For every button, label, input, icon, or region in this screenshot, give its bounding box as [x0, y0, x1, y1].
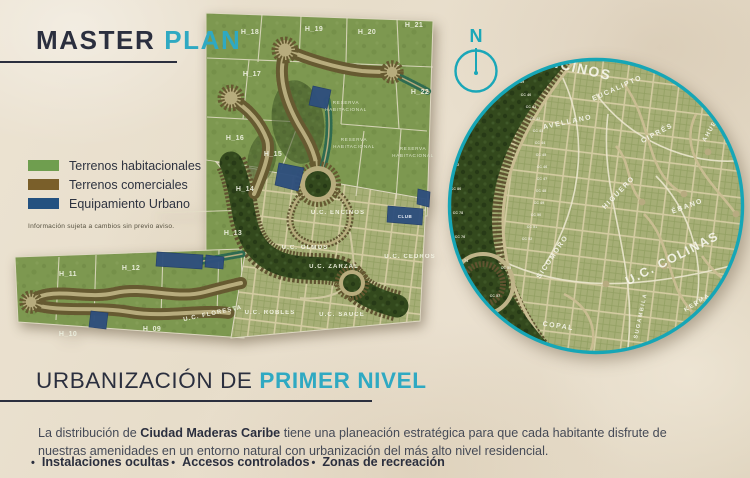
parcel-label: H_09: [143, 326, 161, 333]
parcel-label: H_22: [411, 89, 429, 96]
cc-lot-label: CC 42: [530, 117, 541, 121]
reserve-label: RESERVA: [400, 146, 427, 151]
parcel-label: H_21: [405, 22, 423, 29]
legend-label: Terrenos habitacionales: [69, 159, 201, 173]
parcel-label: H_14: [236, 186, 254, 193]
reserve-label: RESERVA: [341, 137, 368, 142]
cc-lot-label: CC 76: [455, 235, 466, 239]
cc-lot-label: CC 40: [521, 93, 532, 97]
unit-label: U.C. OLMOS: [282, 245, 329, 251]
compass-north-label: N: [470, 26, 483, 46]
parcel-label: H_17: [243, 71, 261, 78]
cc-lot-label: CC 41: [526, 105, 537, 109]
cc-lot-label: CC 55: [501, 266, 512, 270]
unit-label: U.C. CEDROS: [384, 254, 435, 260]
cc-lot-label: CC 43: [533, 129, 544, 133]
legend-row-habitacionales: Terrenos habitacionales: [28, 156, 201, 175]
unit-label: U.C. ZARZAL: [309, 264, 359, 270]
cc-lot-label: CC 50: [531, 213, 542, 217]
section-title-accent: PRIMER NIVEL: [259, 368, 426, 393]
feature-bullet: •: [171, 457, 175, 469]
parcel-label: H_10: [59, 331, 77, 338]
parcel-label: H_13: [224, 230, 242, 237]
legend-swatch-green: [28, 160, 59, 171]
unit-label: U.C. SAUCE: [319, 312, 365, 318]
legend-swatch-brown: [28, 179, 59, 190]
intro-prefix: La distribución de: [38, 426, 140, 440]
inset-content: CC 39CC 40CC 41CC 42CC 43CC 44CC 45CC 46…: [446, 56, 746, 356]
cc-lot-label: CC 47: [537, 177, 548, 181]
cc-lot-label: CC 51: [527, 225, 538, 229]
title-underline: [0, 61, 177, 63]
parcel-label: H_12: [122, 265, 140, 272]
feature-label: Accesos controlados: [182, 455, 309, 469]
section-title: URBANIZACIÓN DE PRIMER NIVEL: [36, 368, 427, 394]
cc-lot-label: CC 44: [535, 141, 546, 145]
section-title-dark: URBANIZACIÓN DE: [36, 368, 259, 393]
unit-label: U.C. ROBLES: [245, 310, 296, 316]
cc-lot-label: CC 52: [522, 237, 533, 241]
reserve-label: HABITACIONAL: [392, 153, 434, 158]
cc-lot-label: CC 57: [490, 294, 501, 298]
parcel-label: H_20: [358, 29, 376, 36]
page-title-accent: PLAN: [164, 25, 241, 55]
legend-swatch-blue: [28, 198, 59, 209]
reserve-label: RESERVA: [333, 100, 360, 105]
cc-lot-label: CC 48: [536, 189, 547, 193]
legend-label: Equipamiento Urbano: [69, 197, 190, 211]
legend-disclaimer: Información sujeta a cambios sin previo …: [28, 223, 174, 230]
cc-lot-label: CC 78: [453, 211, 464, 215]
cc-lot-label: CC 45: [536, 153, 547, 157]
legend: Terrenos habitacionales Terrenos comerci…: [28, 156, 201, 213]
features-line: •Instalaciones ocultas•Accesos controlad…: [31, 455, 445, 469]
parcel-label: H_19: [305, 26, 323, 33]
zoom-inset: CC 39CC 40CC 41CC 42CC 43CC 44CC 45CC 46…: [446, 56, 746, 356]
feature-label: Instalaciones ocultas: [42, 455, 169, 469]
cc-lot-label: CC 84: [447, 139, 458, 143]
feature-bullet: •: [312, 457, 316, 469]
legend-label: Terrenos comerciales: [69, 178, 188, 192]
reserve-label: HABITACIONAL: [325, 107, 367, 112]
section-underline: [0, 400, 372, 402]
legend-row-comerciales: Terrenos comerciales: [28, 175, 201, 194]
cc-lot-label: CC 49: [534, 201, 545, 205]
page-title: MASTER PLAN: [36, 25, 241, 56]
feature-label: Zonas de recreación: [322, 455, 445, 469]
page-title-dark: MASTER: [36, 25, 164, 55]
parcel-label: H_16: [226, 135, 244, 142]
intro-brand: Ciudad Maderas Caribe: [140, 426, 280, 440]
club-label: CLUB: [398, 214, 413, 219]
map-misc-labels: CLUB: [398, 214, 413, 219]
cc-lot-label: CC 46: [537, 165, 548, 169]
feature-bullet: •: [31, 457, 35, 469]
reserve-label: HABITACIONAL: [333, 144, 375, 149]
parcel-label: H_18: [241, 29, 259, 36]
legend-row-equipamiento: Equipamiento Urbano: [28, 194, 201, 213]
parcel-label: H_11: [59, 271, 77, 278]
unit-label: U.C. ENCINOS: [311, 210, 365, 216]
parcel-label: H_15: [264, 151, 282, 158]
